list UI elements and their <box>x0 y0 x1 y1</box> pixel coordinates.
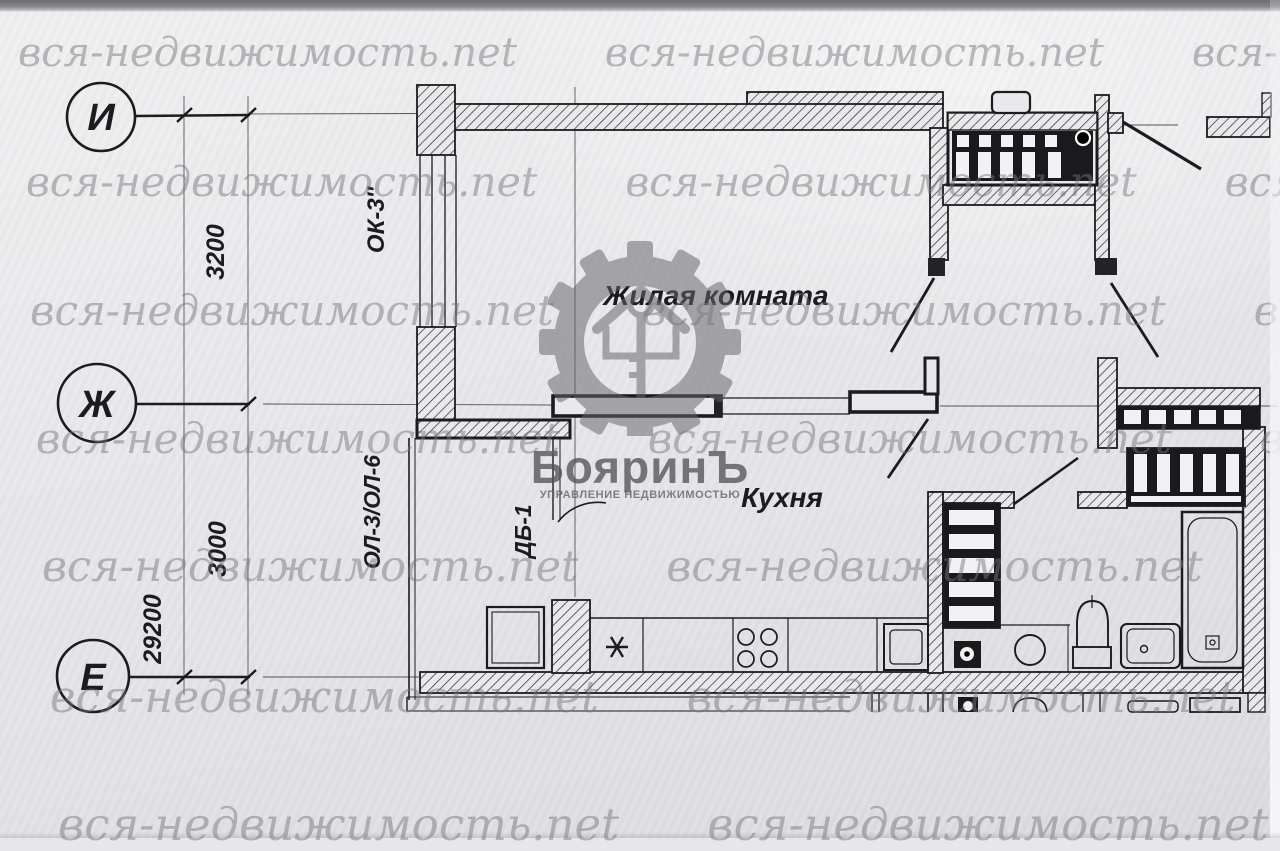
toilet <box>1073 595 1111 668</box>
balcony-door-swing <box>558 502 606 522</box>
axis-label-i: И <box>87 97 115 139</box>
washing-machine <box>487 607 544 668</box>
entrance-door-leaf <box>1123 122 1201 169</box>
washbasin-sink <box>1121 624 1180 668</box>
dimension-3200: 3200 <box>202 224 230 280</box>
vent-shaft-kitchen-column <box>943 503 1000 628</box>
vent-shaft-right-upper <box>1117 406 1260 429</box>
wall-opening-lintels <box>721 398 850 414</box>
stove-burners <box>738 629 777 667</box>
loggia-edge <box>409 438 560 700</box>
dimension-29200: 29200 <box>139 594 167 665</box>
photo-bottom-edge <box>0 832 1280 838</box>
axis-label-e: Е <box>80 657 107 699</box>
window-ok3 <box>420 155 456 327</box>
top-wall-fixture <box>992 92 1030 113</box>
neighbor-unit-cutoff <box>407 693 1265 712</box>
dimension-3000: 3000 <box>204 521 232 577</box>
axis-leader-lines <box>130 115 250 677</box>
kitchen-door-leaf <box>888 419 928 478</box>
room-label-living: Жилая комната <box>601 280 828 311</box>
vent-shaft-right-lower <box>1127 448 1245 506</box>
sink-symbol <box>606 637 628 657</box>
exterior-walls <box>417 85 1271 693</box>
hall-door-leaf <box>1111 283 1158 357</box>
bathtub <box>1182 512 1243 668</box>
living-room-door-leaf <box>891 278 934 352</box>
room-label-kitchen: Кухня <box>741 482 823 513</box>
kitchen-sink-unit <box>884 624 928 670</box>
floor-drain <box>954 641 981 668</box>
mark-balcony-door-db1: ДБ-1 <box>510 504 536 559</box>
mark-loggia-ol3-ol6: ОЛ-3/ОЛ-6 <box>359 455 385 569</box>
interior-partitions <box>553 358 938 416</box>
washbasin-round <box>1015 635 1045 665</box>
axis-label-zh: Ж <box>77 384 116 426</box>
vent-shaft-top <box>948 113 1097 185</box>
kitchen-counter <box>590 618 928 672</box>
photo-top-edge <box>0 0 1280 12</box>
floor-plan-drawing: И Ж Е 3200 3000 29200 ОК-3'' ОЛ-3/ОЛ-6 Д… <box>0 0 1280 838</box>
photo-right-edge <box>1270 0 1280 838</box>
bathroom-door-leaf <box>1014 458 1078 504</box>
mark-window-ok3: ОК-3'' <box>363 186 390 253</box>
